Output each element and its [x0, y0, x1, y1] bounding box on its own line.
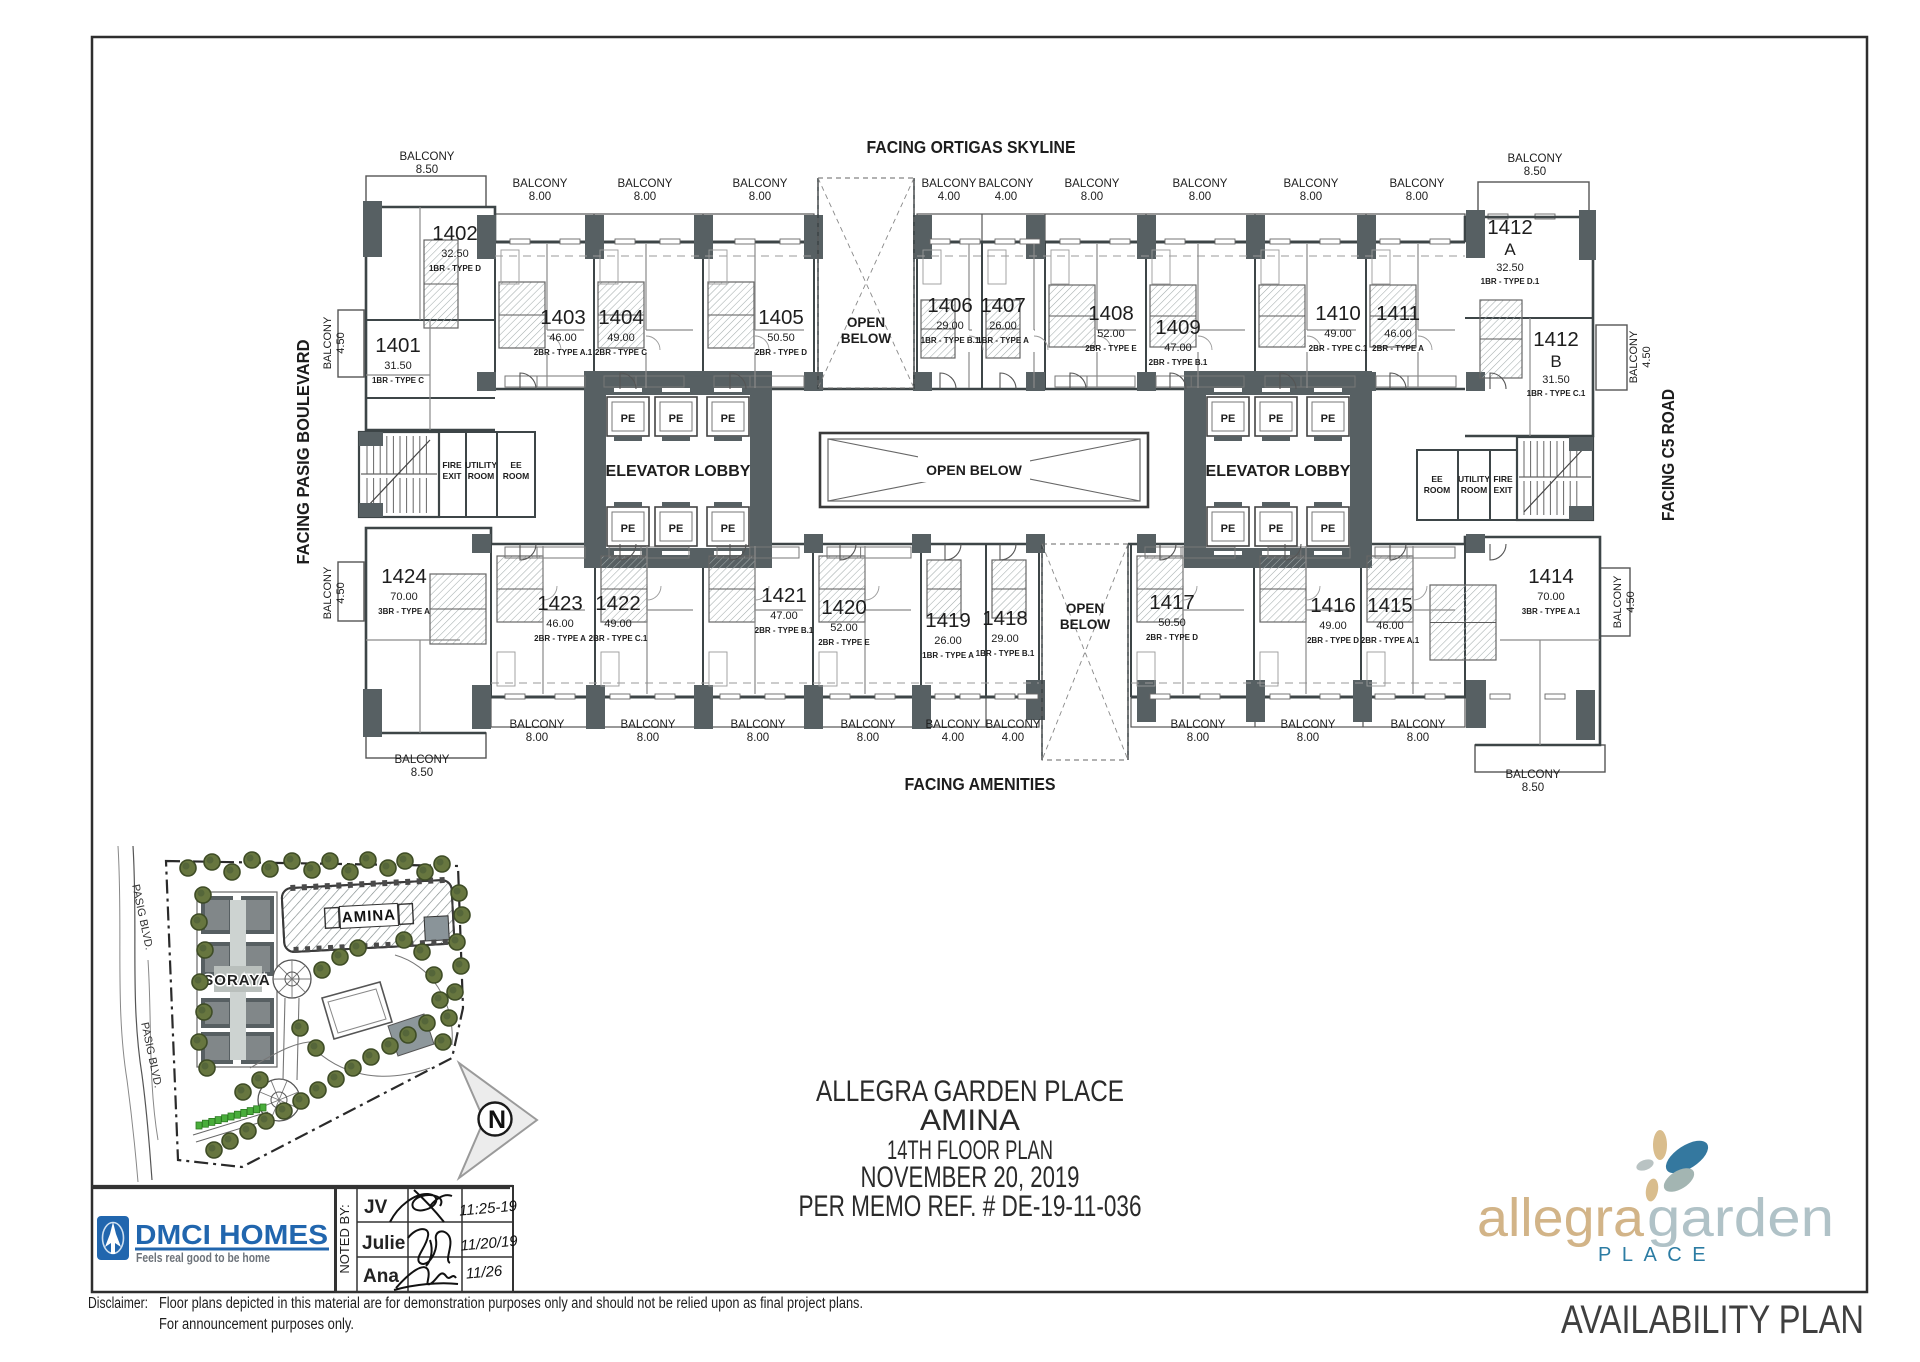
svg-text:1409: 1409 — [1155, 316, 1201, 339]
svg-text:1416: 1416 — [1310, 594, 1356, 617]
svg-text:1BR - TYPE A: 1BR - TYPE A — [977, 336, 1029, 345]
svg-text:4.00: 4.00 — [938, 191, 960, 203]
svg-text:1411: 1411 — [1376, 302, 1420, 325]
svg-text:allegra: allegra — [1477, 1188, 1645, 1248]
svg-text:N: N — [488, 1106, 506, 1134]
svg-text:47.00: 47.00 — [1164, 342, 1192, 354]
svg-text:2BR - TYPE B.1: 2BR - TYPE B.1 — [755, 626, 814, 635]
svg-text:1BR - TYPE D.1: 1BR - TYPE D.1 — [1481, 277, 1540, 286]
svg-text:1418: 1418 — [982, 607, 1028, 630]
svg-text:8.50: 8.50 — [416, 164, 438, 176]
svg-text:29.00: 29.00 — [936, 320, 964, 332]
svg-text:1407: 1407 — [980, 294, 1026, 317]
svg-text:BALCONY: BALCONY — [1171, 719, 1226, 731]
svg-text:BALCONY: BALCONY — [1508, 153, 1563, 165]
svg-text:BALCONY: BALCONY — [841, 719, 896, 731]
svg-text:8.50: 8.50 — [1524, 166, 1546, 178]
svg-text:32.50: 32.50 — [441, 248, 469, 260]
svg-text:BALCONY: BALCONY — [1173, 178, 1228, 190]
svg-text:49.00: 49.00 — [1319, 620, 1347, 632]
svg-text:PE: PE — [1321, 413, 1336, 425]
svg-text:BALCONY: BALCONY — [926, 719, 981, 731]
svg-text:52.00: 52.00 — [830, 622, 858, 634]
svg-text:BALCONY: BALCONY — [1628, 330, 1640, 383]
svg-text:49.00: 49.00 — [1324, 328, 1352, 340]
svg-text:NOTED BY:: NOTED BY: — [337, 1204, 352, 1273]
svg-text:BALCONY: BALCONY — [1612, 575, 1624, 628]
svg-text:4.50: 4.50 — [335, 332, 347, 353]
svg-text:2BR - TYPE C.1: 2BR - TYPE C.1 — [589, 634, 648, 643]
svg-text:BALCONY: BALCONY — [922, 178, 977, 190]
svg-text:BALCONY: BALCONY — [1391, 719, 1446, 731]
svg-text:1419: 1419 — [925, 609, 971, 632]
svg-text:1BR - TYPE C.1: 1BR - TYPE C.1 — [1527, 389, 1586, 398]
svg-text:FACING C5 ROAD: FACING C5 ROAD — [1658, 389, 1678, 521]
svg-text:EXIT: EXIT — [443, 471, 463, 481]
svg-text:AMINA: AMINA — [920, 1104, 1020, 1137]
svg-text:Feels real good to be home: Feels real good to be home — [136, 1250, 270, 1265]
svg-text:8.50: 8.50 — [411, 767, 433, 779]
svg-text:UTILITY: UTILITY — [1458, 474, 1490, 484]
svg-text:BALCONY: BALCONY — [979, 178, 1034, 190]
svg-text:50.50: 50.50 — [767, 332, 795, 344]
svg-text:1424: 1424 — [381, 565, 427, 588]
svg-text:1402: 1402 — [432, 222, 478, 245]
svg-text:3BR - TYPE A.1: 3BR - TYPE A.1 — [1522, 607, 1581, 616]
svg-text:BALCONY: BALCONY — [322, 566, 334, 619]
svg-text:PE: PE — [1221, 413, 1236, 425]
svg-text:BALCONY: BALCONY — [1065, 178, 1120, 190]
svg-text:49.00: 49.00 — [607, 332, 635, 344]
svg-text:1BR - TYPE A: 1BR - TYPE A — [922, 651, 974, 660]
svg-text:FACING ORTIGAS SKYLINE: FACING ORTIGAS SKYLINE — [867, 137, 1076, 157]
svg-text:A: A — [1504, 240, 1516, 259]
svg-text:OPEN BELOW: OPEN BELOW — [926, 462, 1022, 478]
svg-text:47.00: 47.00 — [770, 610, 798, 622]
svg-text:1420: 1420 — [821, 596, 867, 619]
svg-text:2BR - TYPE E: 2BR - TYPE E — [818, 638, 870, 647]
svg-text:1415: 1415 — [1367, 594, 1413, 617]
svg-text:PE: PE — [1269, 413, 1284, 425]
svg-text:BALCONY: BALCONY — [1284, 178, 1339, 190]
svg-text:EE: EE — [1431, 474, 1443, 484]
svg-text:JV: JV — [364, 1197, 388, 1218]
svg-text:PE: PE — [621, 413, 636, 425]
svg-text:1BR - TYPE B.1: 1BR - TYPE B.1 — [921, 336, 980, 345]
svg-text:2BR - TYPE E: 2BR - TYPE E — [1085, 344, 1137, 353]
svg-text:BALCONY: BALCONY — [1506, 769, 1561, 781]
svg-text:2BR - TYPE B.1: 2BR - TYPE B.1 — [1149, 358, 1208, 367]
svg-text:PE: PE — [1269, 523, 1284, 535]
svg-text:1406: 1406 — [927, 294, 973, 317]
svg-text:1405: 1405 — [758, 306, 804, 329]
svg-text:1423: 1423 — [537, 592, 583, 615]
svg-text:FACING AMENITIES: FACING AMENITIES — [905, 774, 1056, 794]
svg-text:8.00: 8.00 — [1406, 191, 1428, 203]
svg-text:ELEVATOR LOBBY: ELEVATOR LOBBY — [606, 463, 751, 480]
svg-text:OPEN: OPEN — [847, 315, 885, 330]
svg-text:2BR - TYPE D: 2BR - TYPE D — [755, 348, 807, 357]
svg-text:For announcement purposes only: For announcement purposes only. — [159, 1316, 354, 1333]
svg-text:8.00: 8.00 — [529, 191, 551, 203]
svg-text:70.00: 70.00 — [1537, 591, 1565, 603]
svg-text:46.00: 46.00 — [1384, 328, 1412, 340]
svg-text:2BR - TYPE A.1: 2BR - TYPE A.1 — [1361, 636, 1420, 645]
svg-text:11/26: 11/26 — [465, 1262, 503, 1282]
svg-text:1422: 1422 — [595, 592, 641, 615]
svg-text:4.50: 4.50 — [1625, 591, 1637, 612]
svg-text:8.00: 8.00 — [857, 732, 879, 744]
svg-text:FIRE: FIRE — [1493, 474, 1513, 484]
svg-text:8.00: 8.00 — [749, 191, 771, 203]
svg-text:ROOM: ROOM — [1424, 485, 1450, 495]
svg-text:BALCONY: BALCONY — [322, 316, 334, 369]
svg-text:EE: EE — [510, 460, 522, 470]
svg-text:ROOM: ROOM — [1461, 485, 1487, 495]
svg-text:1BR - TYPE B.1: 1BR - TYPE B.1 — [976, 649, 1035, 658]
svg-text:4.00: 4.00 — [995, 191, 1017, 203]
svg-text:1414: 1414 — [1528, 565, 1574, 588]
svg-text:1BR - TYPE C: 1BR - TYPE C — [372, 376, 424, 385]
svg-text:8.50: 8.50 — [1522, 782, 1544, 794]
svg-text:4.50: 4.50 — [1641, 346, 1653, 367]
svg-text:SORAYA: SORAYA — [203, 972, 270, 989]
svg-text:BELOW: BELOW — [841, 331, 892, 346]
svg-text:PE: PE — [721, 523, 736, 535]
svg-text:8.00: 8.00 — [1189, 191, 1211, 203]
svg-text:BALCONY: BALCONY — [731, 719, 786, 731]
svg-text:BALCONY: BALCONY — [513, 178, 568, 190]
svg-text:BALCONY: BALCONY — [621, 719, 676, 731]
svg-text:Julie: Julie — [362, 1233, 405, 1254]
svg-text:PE: PE — [669, 523, 684, 535]
svg-text:8.00: 8.00 — [1300, 191, 1322, 203]
svg-text:46.00: 46.00 — [1376, 620, 1404, 632]
svg-text:Ana: Ana — [363, 1266, 399, 1287]
svg-text:BALCONY: BALCONY — [1390, 178, 1445, 190]
svg-text:UTILITY: UTILITY — [465, 460, 497, 470]
svg-text:31.50: 31.50 — [384, 360, 412, 372]
svg-text:PE: PE — [621, 523, 636, 535]
svg-text:PE: PE — [1321, 523, 1336, 535]
svg-text:8.00: 8.00 — [1407, 732, 1429, 744]
svg-text:3BR - TYPE A: 3BR - TYPE A — [378, 607, 430, 616]
svg-text:PLACE: PLACE — [1598, 1244, 1716, 1266]
svg-text:1412: 1412 — [1533, 328, 1579, 351]
svg-text:1BR - TYPE D: 1BR - TYPE D — [429, 264, 481, 273]
svg-text:4.50: 4.50 — [335, 582, 347, 603]
svg-text:OPEN: OPEN — [1066, 601, 1104, 616]
svg-text:FACING PASIG BOULEVARD: FACING PASIG BOULEVARD — [293, 340, 313, 565]
svg-text:Floor plans depicted in this m: Floor plans depicted in this material ar… — [159, 1295, 863, 1312]
svg-text:2BR - TYPE A: 2BR - TYPE A — [1372, 344, 1424, 353]
svg-text:PE: PE — [669, 413, 684, 425]
svg-text:8.00: 8.00 — [747, 732, 769, 744]
svg-text:PER MEMO REF. # DE-19-11-036: PER MEMO REF. # DE-19-11-036 — [799, 1190, 1142, 1223]
svg-text:AVAILABILITY PLAN: AVAILABILITY PLAN — [1561, 1298, 1864, 1342]
svg-text:26.00: 26.00 — [989, 320, 1017, 332]
svg-text:8.00: 8.00 — [637, 732, 659, 744]
svg-text:AMINA: AMINA — [341, 907, 396, 927]
svg-text:8.00: 8.00 — [1081, 191, 1103, 203]
svg-text:BALCONY: BALCONY — [1281, 719, 1336, 731]
svg-text:ROOM: ROOM — [468, 471, 494, 481]
svg-text:29.00: 29.00 — [991, 633, 1019, 645]
svg-text:50.50: 50.50 — [1158, 617, 1186, 629]
svg-text:4.00: 4.00 — [942, 732, 964, 744]
svg-text:1421: 1421 — [761, 584, 807, 607]
svg-text:EXIT: EXIT — [1494, 485, 1514, 495]
svg-text:BALCONY: BALCONY — [510, 719, 565, 731]
svg-text:2BR - TYPE C.1: 2BR - TYPE C.1 — [1309, 344, 1368, 353]
svg-text:BALCONY: BALCONY — [733, 178, 788, 190]
svg-text:PE: PE — [721, 413, 736, 425]
svg-text:2BR - TYPE D: 2BR - TYPE D — [1146, 633, 1198, 642]
svg-text:8.00: 8.00 — [526, 732, 548, 744]
svg-text:8.00: 8.00 — [634, 191, 656, 203]
svg-text:DMCI HOMES: DMCI HOMES — [135, 1219, 328, 1250]
svg-text:1410: 1410 — [1315, 302, 1361, 325]
svg-text:FIRE: FIRE — [442, 460, 462, 470]
svg-text:1404: 1404 — [598, 306, 644, 329]
svg-text:46.00: 46.00 — [546, 618, 574, 630]
svg-text:BALCONY: BALCONY — [618, 178, 673, 190]
svg-text:B: B — [1550, 352, 1561, 371]
svg-text:ROOM: ROOM — [503, 471, 529, 481]
svg-text:Disclaimer:: Disclaimer: — [88, 1295, 148, 1312]
svg-text:31.50: 31.50 — [1542, 374, 1570, 386]
svg-text:1417: 1417 — [1149, 591, 1195, 614]
svg-text:70.00: 70.00 — [390, 591, 418, 603]
svg-text:49.00: 49.00 — [604, 618, 632, 630]
svg-text:8.00: 8.00 — [1297, 732, 1319, 744]
svg-text:2BR - TYPE D: 2BR - TYPE D — [1307, 636, 1359, 645]
svg-text:garden: garden — [1647, 1188, 1834, 1248]
svg-text:BALCONY: BALCONY — [986, 719, 1041, 731]
svg-text:2BR - TYPE C: 2BR - TYPE C — [595, 348, 647, 357]
svg-text:32.50: 32.50 — [1496, 262, 1524, 274]
svg-text:BALCONY: BALCONY — [395, 754, 450, 766]
svg-text:26.00: 26.00 — [934, 635, 962, 647]
svg-text:ELEVATOR LOBBY: ELEVATOR LOBBY — [1206, 463, 1351, 480]
svg-text:1408: 1408 — [1088, 302, 1134, 325]
svg-text:52.00: 52.00 — [1097, 328, 1125, 340]
svg-text:46.00: 46.00 — [549, 332, 577, 344]
svg-text:BALCONY: BALCONY — [400, 151, 455, 163]
svg-text:1403: 1403 — [540, 306, 586, 329]
svg-text:8.00: 8.00 — [1187, 732, 1209, 744]
svg-text:4.00: 4.00 — [1002, 732, 1024, 744]
svg-text:1412: 1412 — [1487, 216, 1533, 239]
svg-text:1401: 1401 — [375, 334, 421, 357]
svg-text:2BR - TYPE A.1: 2BR - TYPE A.1 — [534, 348, 593, 357]
svg-text:PE: PE — [1221, 523, 1236, 535]
svg-text:BELOW: BELOW — [1060, 617, 1111, 632]
svg-text:2BR - TYPE A: 2BR - TYPE A — [534, 634, 586, 643]
